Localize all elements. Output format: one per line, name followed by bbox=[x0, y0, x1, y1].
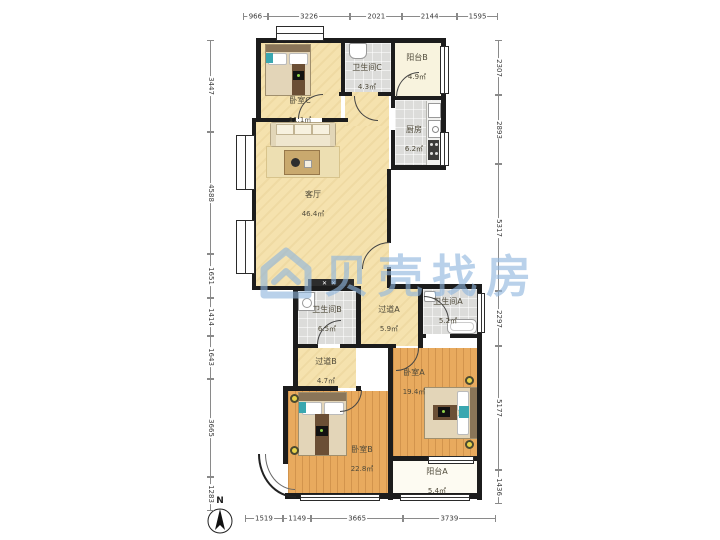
wall-segment bbox=[256, 38, 261, 122]
nightstand-lamp bbox=[465, 440, 474, 449]
dimension-left: 1651 bbox=[206, 254, 215, 298]
wall-segment bbox=[293, 286, 361, 291]
stove-icon bbox=[428, 140, 439, 160]
dimension-top: 1595 bbox=[457, 12, 498, 21]
north-arrow-icon bbox=[206, 507, 234, 535]
wall-segment bbox=[388, 344, 393, 500]
bay-window bbox=[276, 26, 324, 41]
room-label-bathroom-c: 卫生间C4.3㎡ bbox=[352, 55, 382, 93]
compass: N bbox=[198, 496, 242, 535]
wall-segment bbox=[339, 92, 352, 96]
dimension-top: 3226 bbox=[268, 12, 351, 21]
dimension-top: 2021 bbox=[350, 12, 402, 21]
window bbox=[477, 293, 485, 333]
dimension-left: 1414 bbox=[206, 298, 215, 336]
room-label-balcony-b: 阳台B4.9㎡ bbox=[406, 45, 428, 83]
wall-segment bbox=[340, 344, 359, 348]
dimension-bottom: 3665 bbox=[311, 514, 402, 523]
wall-segment bbox=[293, 344, 318, 348]
fridge-icon bbox=[428, 103, 441, 118]
coffee-table bbox=[284, 150, 320, 175]
dimension-right: 5317 bbox=[494, 164, 503, 291]
compass-n-label: N bbox=[198, 496, 242, 506]
dimension-right: 1436 bbox=[494, 470, 503, 504]
dimension-right: 5177 bbox=[494, 346, 503, 470]
wall-segment bbox=[341, 38, 345, 96]
kitchen-counter bbox=[426, 101, 441, 165]
wall-segment bbox=[391, 38, 395, 100]
dimension-right: 2297 bbox=[494, 291, 503, 346]
room-label-hallway-a: 过道A5.9㎡ bbox=[378, 297, 399, 335]
floorplan-canvas: ✕✕ 卧室C11.1㎡ 卫生间C4.3㎡ 阳台B4.9㎡ 厨房6.2㎡ 客厅46… bbox=[0, 0, 720, 540]
dimension-bottom: 1149 bbox=[283, 514, 312, 523]
dimension-bottom: 3739 bbox=[403, 514, 496, 523]
room-label-bedroom-c: 卧室C11.1㎡ bbox=[289, 88, 312, 126]
dimension-left: 1283 bbox=[206, 477, 215, 511]
room-label-balcony-a: 阳台A5.4㎡ bbox=[426, 459, 447, 497]
window bbox=[300, 494, 380, 501]
dimension-right: 2893 bbox=[494, 95, 503, 164]
dimension-top: 2144 bbox=[402, 12, 457, 21]
dimension-left: 3447 bbox=[206, 40, 215, 132]
dimension-left: 4588 bbox=[206, 132, 215, 254]
dimension-top: 966 bbox=[243, 12, 268, 21]
window bbox=[440, 46, 449, 94]
bed-a bbox=[424, 387, 478, 439]
wall-segment bbox=[322, 118, 348, 122]
window bbox=[440, 132, 449, 166]
wall-segment bbox=[356, 286, 361, 348]
room-label-bathroom-b: 卫生间B6.5㎡ bbox=[312, 297, 342, 335]
room-label-hallway-b: 过道B4.7㎡ bbox=[315, 349, 337, 387]
nightstand-lamp bbox=[465, 376, 474, 385]
bay-window bbox=[236, 220, 255, 274]
room-label-living: 客厅46.4㎡ bbox=[302, 182, 325, 220]
wall-segment bbox=[387, 169, 391, 243]
wall-segment bbox=[418, 334, 426, 338]
wall-segment bbox=[418, 286, 423, 348]
dimension-left: 1643 bbox=[206, 336, 215, 380]
nightstand-lamp bbox=[290, 394, 299, 403]
wall-segment bbox=[450, 334, 482, 338]
dimension-right: 2307 bbox=[494, 40, 503, 95]
dimension-bottom: 1519 bbox=[245, 514, 283, 523]
wall-segment bbox=[283, 386, 288, 464]
room-label-bedroom-a: 卧室A19.4㎡ bbox=[403, 360, 426, 398]
wall-segment bbox=[391, 130, 395, 169]
bay-window bbox=[236, 135, 255, 190]
wall-segment bbox=[293, 286, 298, 390]
wall-segment bbox=[391, 165, 445, 170]
room-label-bedroom-b: 卧室B22.8㎡ bbox=[351, 437, 374, 475]
dimension-left: 3665 bbox=[206, 379, 215, 477]
room-label-bathroom-a: 卫生间A5.2㎡ bbox=[433, 289, 462, 327]
room-label-kitchen: 厨房6.2㎡ bbox=[405, 117, 423, 155]
